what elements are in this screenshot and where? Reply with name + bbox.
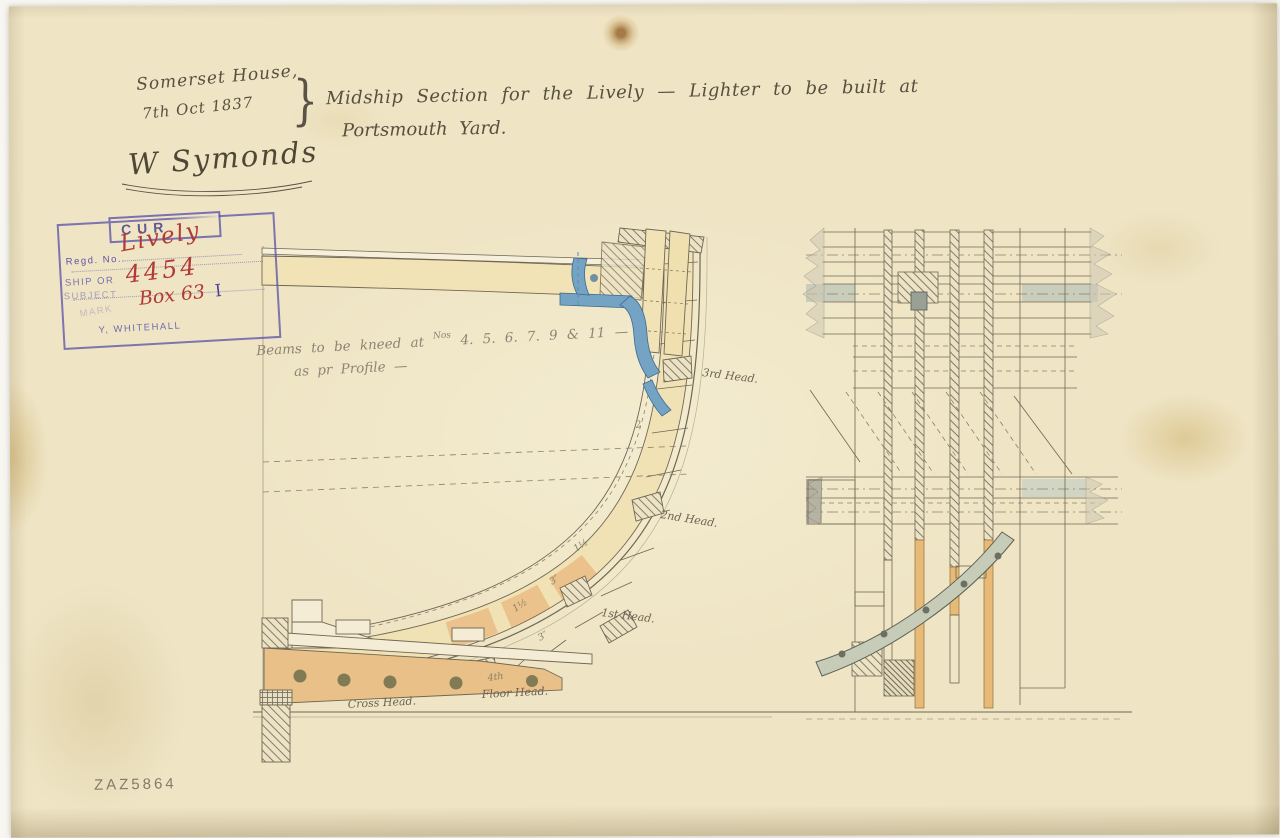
scanned-ship-plan: 3rd Head. 2nd Head. 1st Head. Floor Head… xyxy=(0,0,1280,838)
midship-section-drawing xyxy=(253,228,1132,762)
drawing-title-line2: Portsmouth Yard. xyxy=(342,118,507,142)
stamp-subject-label: SUBJECT xyxy=(64,289,118,302)
brace-glyph: } xyxy=(292,73,319,128)
label-3rd-head: 3rd Head. xyxy=(702,366,759,386)
label-2nd-head: 2nd Head. xyxy=(659,508,719,530)
archive-reference-number: ZAZ5864 xyxy=(94,775,177,793)
stamp-mark-label: MARK xyxy=(79,304,114,320)
label-cross-head: Cross Head. xyxy=(347,694,416,711)
dim-4th: 4th xyxy=(486,671,504,684)
stamp-ship-or-label: SHIP OR xyxy=(65,275,115,289)
label-floor-head: Floor Head. xyxy=(480,685,548,702)
stamp-roman-numeral: I xyxy=(214,281,223,302)
dim-2: 2 xyxy=(634,419,643,431)
stamp-regd-text: Regd. No. xyxy=(65,254,122,268)
signature-flourish xyxy=(122,181,312,196)
note-sup-nos: Nos xyxy=(433,331,451,342)
stamp-whitehall-label: Y, WHITEHALL xyxy=(98,320,181,336)
drawing-canvas: 3rd Head. 2nd Head. 1st Head. Floor Head… xyxy=(0,0,1280,838)
admiralty-registration-stamp: CUR Regd. No. SHIP OR SUBJECT MARK Y, WH… xyxy=(57,212,282,350)
plan-expansion-drawing xyxy=(803,228,1122,712)
